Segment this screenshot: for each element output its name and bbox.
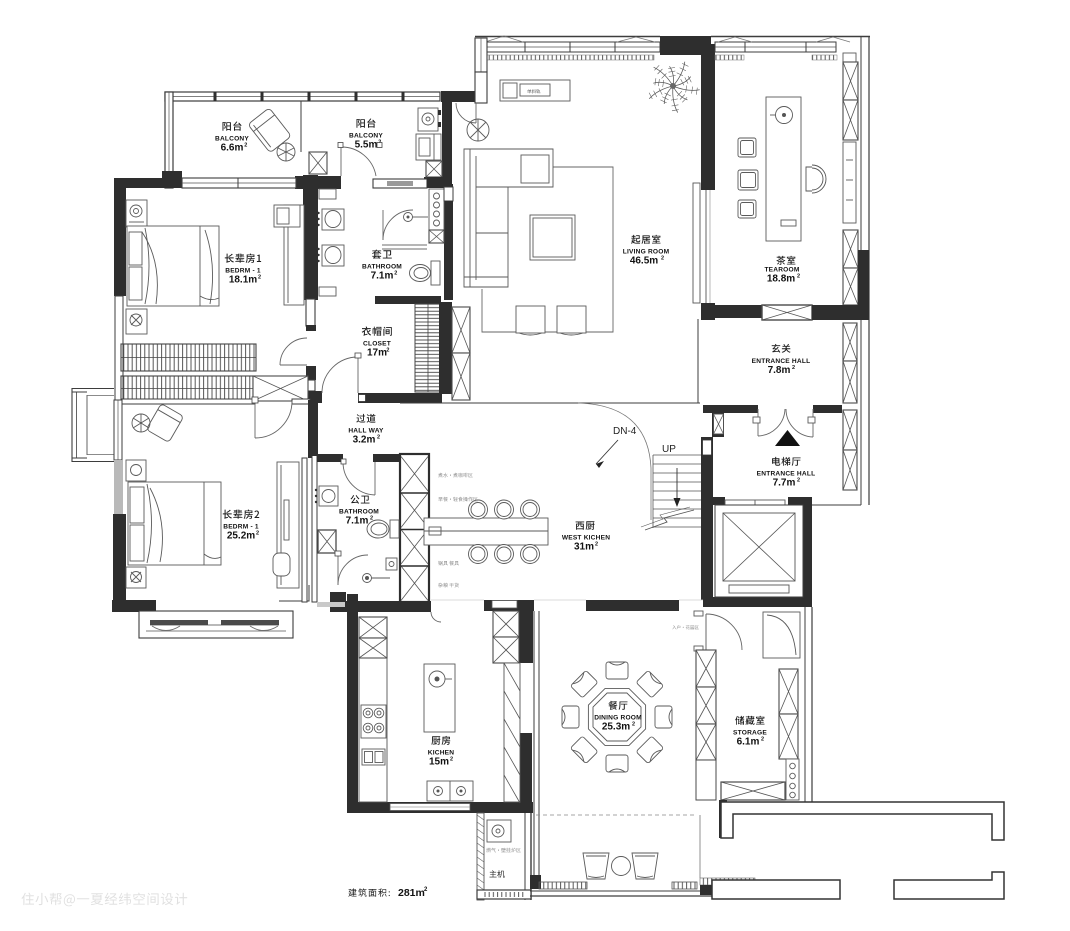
svg-text:2: 2 [256,531,259,537]
svg-text:CLOSET: CLOSET [363,341,391,348]
svg-text:281m: 281m [398,887,425,899]
svg-text:DINING ROOM: DINING ROOM [594,715,642,722]
svg-text:KICHEN: KICHEN [428,750,455,757]
svg-text:3.2m: 3.2m [353,435,376,446]
svg-text:25.3m: 25.3m [602,722,630,733]
svg-text:2: 2 [797,478,800,484]
svg-text:2: 2 [394,271,397,277]
svg-text:18.1m: 18.1m [229,275,257,286]
svg-text:2: 2 [244,143,247,149]
svg-text:31m: 31m [574,542,594,553]
svg-text:7.7m: 7.7m [773,478,796,489]
svg-text:15m: 15m [429,757,449,768]
svg-text:2: 2 [661,256,664,262]
svg-text:6.6m: 6.6m [221,143,244,154]
svg-text:BEDRM - 1: BEDRM - 1 [225,268,261,275]
svg-text:2: 2 [797,274,800,280]
svg-text:HALL WAY: HALL WAY [348,428,384,435]
svg-text:46.5m: 46.5m [630,256,658,267]
svg-text:7.8m: 7.8m [768,365,791,376]
svg-text:BATHROOM: BATHROOM [339,509,379,516]
svg-text:BALCONY: BALCONY [349,133,383,140]
svg-text:ENTRANCE HALL: ENTRANCE HALL [757,471,816,478]
svg-text:STORAGE: STORAGE [733,730,767,737]
svg-text:2: 2 [386,348,389,354]
svg-text:LIVING ROOM: LIVING ROOM [623,249,670,256]
svg-text:UP: UP [662,444,676,455]
svg-text:2: 2 [595,542,598,548]
svg-text:18.8m: 18.8m [767,274,795,285]
svg-text:2: 2 [792,365,795,371]
svg-text:TEAROOM: TEAROOM [764,267,799,274]
svg-text:BEDRM - 1: BEDRM - 1 [223,524,259,531]
svg-text:2: 2 [632,722,635,728]
svg-text:2: 2 [450,757,453,763]
svg-text:BATHROOM: BATHROOM [362,264,402,271]
svg-text:7.1m: 7.1m [346,516,369,527]
svg-text:6.1m: 6.1m [737,737,760,748]
svg-text:DN-4: DN-4 [613,426,637,437]
svg-text:ENTRANCE HALL: ENTRANCE HALL [752,358,811,365]
svg-text:7.1m: 7.1m [371,271,394,282]
svg-text:17m: 17m [367,348,387,359]
svg-text:5.5m: 5.5m [355,140,378,151]
svg-text:WEST KICHEN: WEST KICHEN [562,535,610,542]
svg-text:2: 2 [377,435,380,441]
svg-text:2: 2 [761,737,764,743]
svg-text:2: 2 [370,516,373,522]
svg-text:25.2m: 25.2m [227,531,255,542]
svg-text:BALCONY: BALCONY [215,136,249,143]
svg-text:2: 2 [258,275,261,281]
